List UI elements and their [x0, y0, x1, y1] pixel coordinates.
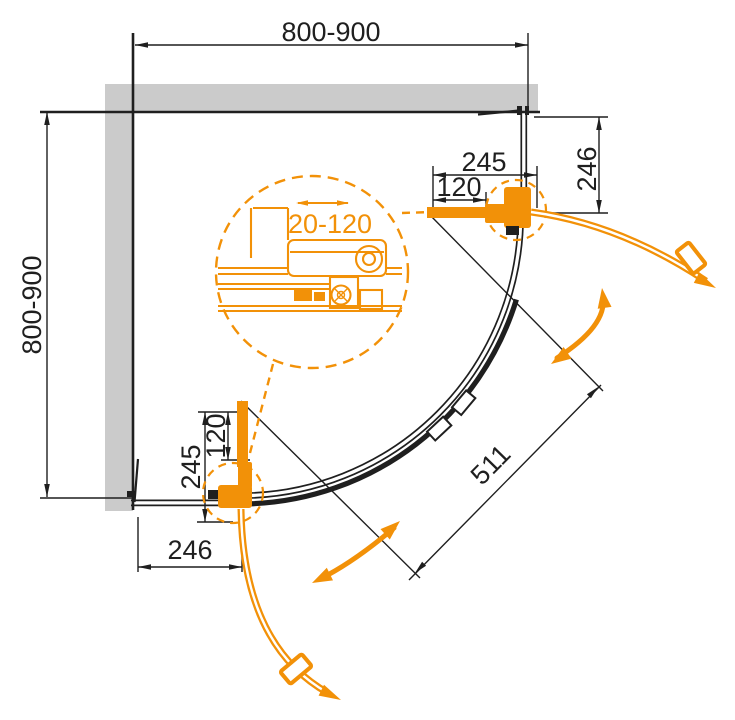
door-open-bottom: [241, 509, 341, 700]
swing-arrow-top: [551, 288, 612, 364]
dim-diagonal-opening: 511: [241, 213, 603, 580]
enclosure-technical-drawing: 800-900 800-900 246 245 120 245 12: [0, 0, 735, 720]
dim-label-bottom-pivot-offset: 120: [201, 413, 231, 458]
dim-label-left-depth: 800-900: [17, 255, 47, 354]
door-top-inner-edge: [427, 207, 507, 218]
door-bottom-inner-edge: [237, 401, 248, 467]
dim-label-top-width: 800-900: [281, 17, 380, 47]
dim-bottom-panel: 246: [138, 517, 242, 572]
detail-callout-circle: [216, 176, 408, 368]
dim-label-bottom-panel: 246: [167, 535, 212, 565]
detail-rails-mid: [218, 284, 330, 289]
dim-top-pivot-offset: 120: [433, 172, 486, 211]
walls: [40, 33, 540, 511]
wall-top: [105, 84, 538, 112]
door-open-top: [531, 212, 716, 288]
curved-glass-inner-rail: [240, 215, 518, 493]
detail-roller-outer: [356, 246, 382, 272]
swing-arrow-bottom: [312, 521, 400, 583]
dim-label-right-panel: 246: [572, 146, 602, 191]
dim-label-profile-adjustment: 20-120: [288, 209, 372, 239]
dim-label-top-pivot-offset: 120: [436, 172, 481, 202]
drawing-canvas: 800-900 800-900 246 245 120 245 12: [0, 0, 735, 720]
curve-bracket-tab-1: [452, 390, 475, 415]
detail-clamp-block-1: [294, 290, 312, 301]
wall-left: [105, 84, 133, 511]
dim-label-diagonal-opening: 511: [465, 439, 517, 491]
detail-roller-inner: [363, 253, 375, 265]
dim-right-panel: 246: [534, 117, 608, 213]
detail-clamp-block-2: [314, 292, 325, 301]
detail-mechanism: 20-120: [218, 200, 402, 311]
wall-bracket-bottom: [135, 459, 139, 502]
detail-extension-lines: [251, 208, 288, 258]
curve-bracket-tab-2: [427, 417, 451, 441]
detail-screw-cross: [335, 289, 347, 301]
